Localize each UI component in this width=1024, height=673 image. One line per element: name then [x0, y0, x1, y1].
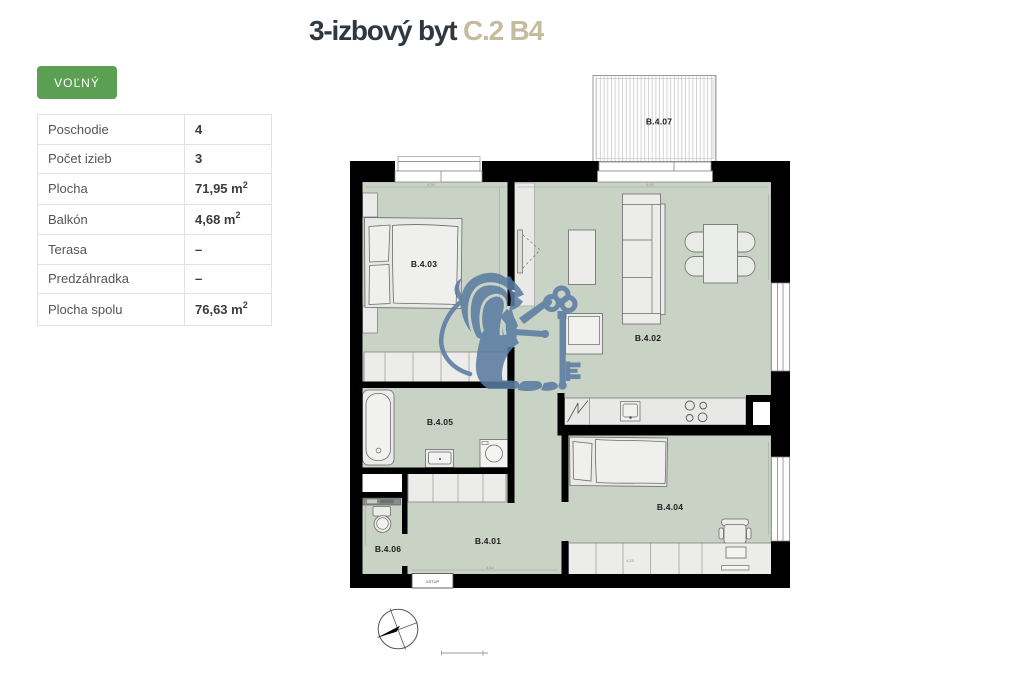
svg-text:B.4.02: B.4.02 — [635, 333, 661, 343]
svg-text:B.4.06: B.4.06 — [375, 544, 401, 554]
svg-text:4,30: 4,30 — [427, 182, 436, 187]
svg-text:B.4.04: B.4.04 — [657, 502, 683, 512]
svg-text:6,45: 6,45 — [646, 182, 655, 187]
svg-text:B.4.03: B.4.03 — [411, 259, 437, 269]
svg-text:VSTUP: VSTUP — [426, 579, 440, 584]
svg-text:4,64: 4,64 — [486, 565, 495, 570]
svg-text:B.4.05: B.4.05 — [427, 417, 453, 427]
svg-text:B.4.01: B.4.01 — [475, 536, 501, 546]
svg-text:4,25: 4,25 — [626, 558, 635, 563]
svg-text:B.4.07: B.4.07 — [646, 117, 672, 127]
